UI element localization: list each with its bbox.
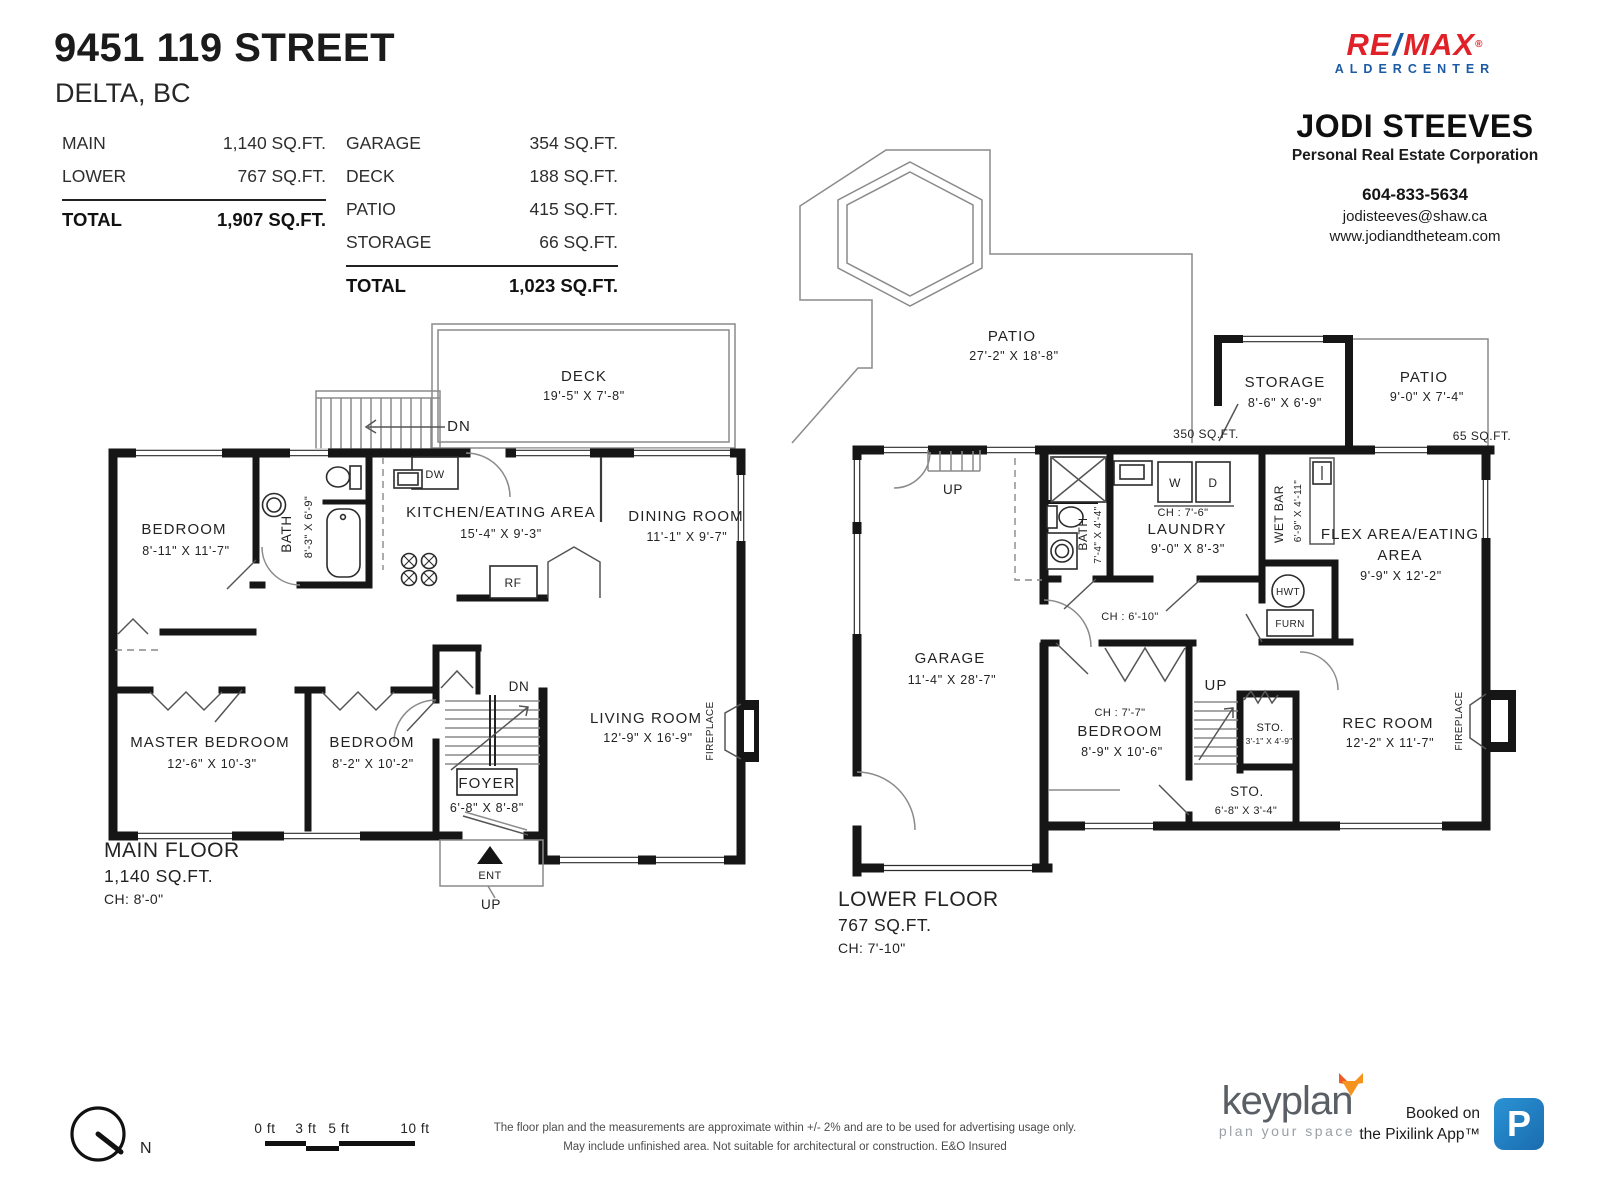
scale-bar: 0 ft 3 ft 5 ft 10 ft bbox=[254, 1121, 429, 1151]
trademark-icon: ® bbox=[1475, 39, 1483, 50]
summary-label: MAIN bbox=[62, 133, 106, 154]
summary-label: PATIO bbox=[346, 199, 396, 220]
summary-row: GARAGE 354 SQ.FT. bbox=[346, 133, 618, 154]
room-label-patio: PATIO bbox=[988, 328, 1036, 345]
scale-10: 10 ft bbox=[400, 1121, 429, 1136]
room-label-bath-main: BATH bbox=[279, 515, 294, 552]
entry-label: ENT bbox=[478, 870, 501, 882]
remax-office: ALDERCENTER bbox=[1262, 62, 1568, 76]
room-dims-garage: 11'-4" X 28'-7" bbox=[908, 673, 997, 687]
agent-website: www.jodiandtheteam.com bbox=[1262, 228, 1568, 245]
patio-outline bbox=[792, 150, 1192, 443]
room-label-bedroom2: BEDROOM bbox=[329, 734, 414, 751]
fridge-label: RF bbox=[505, 576, 522, 590]
room-label-kitchen: KITCHEN/EATING AREA bbox=[406, 504, 596, 521]
room-dims-storage: 8'-6" X 6'-9" bbox=[1248, 396, 1322, 410]
main-fireplace bbox=[725, 700, 759, 762]
entry-porch bbox=[440, 840, 543, 898]
garage-up-label: UP bbox=[943, 482, 963, 497]
agent-email: jodisteeves@shaw.ca bbox=[1262, 208, 1568, 225]
room-label-patio2: PATIO bbox=[1400, 369, 1448, 386]
room-label-laundry: LAUNDRY bbox=[1147, 521, 1226, 538]
scale-5: 5 ft bbox=[328, 1121, 349, 1136]
room-dims-foyer: 6'-8" X 8'-8" bbox=[450, 801, 524, 815]
remax-logo: RE/MAX® bbox=[1262, 30, 1568, 60]
main-floor-sqft: 1,140 SQ.FT. bbox=[104, 866, 213, 886]
main-floor-plan bbox=[113, 324, 759, 898]
page-subtitle: DELTA, BC bbox=[55, 78, 191, 109]
furnace-label: FURN bbox=[1275, 619, 1304, 630]
room-label-sto2: STO. bbox=[1230, 784, 1264, 799]
north-label: N bbox=[140, 1140, 152, 1157]
scale-3: 3 ft bbox=[295, 1121, 316, 1136]
summary-row: LOWER 767 SQ.FT. bbox=[62, 166, 326, 187]
room-dims-laundry: 9'-0" X 8'-3" bbox=[1151, 542, 1225, 556]
room-label-master: MASTER BEDROOM bbox=[130, 734, 290, 751]
pixilink-line2: the Pixilink App™ bbox=[1330, 1124, 1480, 1145]
summary-label: GARAGE bbox=[346, 133, 421, 154]
compass: N bbox=[72, 1108, 152, 1160]
room-dims-bath-main: 8'-3" X 6'-9" bbox=[303, 496, 315, 558]
summary-divider bbox=[62, 199, 326, 201]
room-dims-master: 12'-6" X 10'-3" bbox=[167, 757, 256, 771]
room-label-deck: DECK bbox=[561, 368, 607, 385]
pixilink-logo-icon: P bbox=[1494, 1098, 1544, 1150]
laundry-ch: CH : 7'-6" bbox=[1158, 507, 1209, 519]
fireplace-label-main: FIREPLACE bbox=[705, 701, 716, 760]
summary-value: 415 SQ.FT. bbox=[529, 199, 618, 220]
summary-total-value: 1,023 SQ.FT. bbox=[509, 275, 618, 297]
room-dims-wetbar: 6'-9" X 4'-11" bbox=[1293, 480, 1304, 543]
room-label-wetbar: WET BAR bbox=[1272, 485, 1286, 543]
deck-outline bbox=[432, 324, 735, 448]
foyer-stairs bbox=[445, 695, 540, 770]
area-summary-left: MAIN 1,140 SQ.FT. LOWER 767 SQ.FT. TOTAL… bbox=[62, 133, 326, 231]
area-summary-right: GARAGE 354 SQ.FT. DECK 188 SQ.FT. PATIO … bbox=[346, 133, 618, 297]
foyer-dn-label: DN bbox=[509, 679, 530, 694]
summary-total-row: TOTAL 1,907 SQ.FT. bbox=[62, 209, 326, 231]
room-label-flex2: AREA bbox=[1377, 547, 1422, 564]
stairs-up-label: UP bbox=[1204, 677, 1227, 694]
summary-value: 188 SQ.FT. bbox=[529, 166, 618, 187]
summary-value: 354 SQ.FT. bbox=[529, 133, 618, 154]
room-dims-living: 12'-9" X 16'-9" bbox=[603, 731, 692, 745]
summary-row: PATIO 415 SQ.FT. bbox=[346, 199, 618, 220]
stairs-dn-label: DN bbox=[447, 418, 471, 435]
disclaimer-line1: The floor plan and the measurements are … bbox=[430, 1119, 1140, 1138]
washer-label: W bbox=[1169, 476, 1181, 490]
summary-value: 66 SQ.FT. bbox=[539, 232, 618, 253]
room-dims-dining: 11'-1" X 9'-7" bbox=[647, 530, 728, 544]
remax-slash-icon: / bbox=[1392, 27, 1404, 62]
room-label-bedroom-lower: BEDROOM bbox=[1077, 723, 1162, 740]
summary-row: DECK 188 SQ.FT. bbox=[346, 166, 618, 187]
room-dims-sto1: 3'-1" X 4'-9" bbox=[1246, 736, 1293, 746]
room-dims-bedroom1: 8'-11" X 11'-7" bbox=[142, 544, 230, 558]
disclaimer: The floor plan and the measurements are … bbox=[430, 1119, 1140, 1157]
room-dims-patio: 27'-2" X 18'-8" bbox=[969, 349, 1058, 363]
main-floor-title: MAIN FLOOR bbox=[104, 839, 240, 862]
room-dims-bedroom2: 8'-2" X 10'-2" bbox=[332, 757, 414, 771]
agent-card: RE/MAX® ALDERCENTER JODI STEEVES Persona… bbox=[1262, 30, 1568, 245]
room-dims-rec: 12'-2" X 11'-7" bbox=[1346, 736, 1435, 750]
remax-re: RE bbox=[1347, 27, 1392, 62]
room-label-rec: REC ROOM bbox=[1342, 715, 1433, 732]
summary-row: MAIN 1,140 SQ.FT. bbox=[62, 133, 326, 154]
hwt-label: HWT bbox=[1276, 587, 1300, 598]
summary-label: LOWER bbox=[62, 166, 126, 187]
deck-stairs bbox=[316, 391, 445, 449]
room-label-storage: STORAGE bbox=[1245, 374, 1326, 391]
summary-total-row: TOTAL 1,023 SQ.FT. bbox=[346, 275, 618, 297]
room-dims-bath-lower: 7'-4" X 4'-4" bbox=[1093, 506, 1104, 563]
summary-total-value: 1,907 SQ.FT. bbox=[217, 209, 326, 231]
pixilink-line1: Booked on bbox=[1330, 1103, 1480, 1124]
summary-total-label: TOTAL bbox=[62, 209, 122, 231]
summary-value: 1,140 SQ.FT. bbox=[223, 133, 326, 154]
fireplace-label-lower: FIREPLACE bbox=[1454, 691, 1465, 750]
disclaimer-line2: May include unfinished area. Not suitabl… bbox=[430, 1138, 1140, 1157]
summary-total-label: TOTAL bbox=[346, 275, 406, 297]
patio-sqft: 350 SQ.FT. bbox=[1173, 427, 1239, 441]
summary-label: DECK bbox=[346, 166, 395, 187]
bedroom-lower-ch: CH : 7'-7" bbox=[1095, 707, 1146, 719]
room-dims-bedroom-lower: 8'-9" X 10'-6" bbox=[1081, 745, 1163, 759]
fox-icon bbox=[1336, 1072, 1366, 1098]
agent-phone: 604-833-5634 bbox=[1262, 185, 1568, 205]
room-dims-patio2: 9'-0" X 7'-4" bbox=[1390, 390, 1464, 404]
room-dims-flex: 9'-9" X 12'-2" bbox=[1360, 569, 1442, 583]
lower-floor-title: LOWER FLOOR bbox=[838, 888, 999, 911]
porch-up-label: UP bbox=[481, 897, 501, 912]
room-label-dining: DINING ROOM bbox=[628, 508, 743, 525]
main-floor-ch: CH: 8'-0" bbox=[104, 891, 163, 907]
lower-closet-doors bbox=[1105, 648, 1185, 681]
pixilink-badge: Booked on the Pixilink App™ P bbox=[1330, 1098, 1544, 1150]
lower-windows bbox=[853, 335, 1491, 873]
summary-divider bbox=[346, 265, 618, 267]
agent-designation: Personal Real Estate Corporation bbox=[1262, 147, 1568, 165]
garage-details bbox=[928, 450, 1042, 580]
summary-value: 767 SQ.FT. bbox=[237, 166, 326, 187]
lower-floor-ch: CH: 7'-10" bbox=[838, 940, 906, 956]
room-dims-deck: 19'-5" X 7'-8" bbox=[543, 389, 625, 403]
room-label-bedroom1: BEDROOM bbox=[141, 521, 226, 538]
room-label-living: LIVING ROOM bbox=[590, 710, 702, 727]
agent-name: JODI STEEVES bbox=[1262, 108, 1568, 145]
room-label-flex1: FLEX AREA/EATING bbox=[1321, 526, 1479, 543]
summary-row: STORAGE 66 SQ.FT. bbox=[346, 232, 618, 253]
remax-max: MAX bbox=[1403, 27, 1475, 62]
room-label-foyer: FOYER bbox=[458, 775, 515, 792]
hall-ch: CH : 6'-10" bbox=[1101, 611, 1158, 623]
patio2-sqft: 65 SQ.FT. bbox=[1453, 429, 1512, 443]
page-title: 9451 119 STREET bbox=[54, 26, 395, 71]
scale-0: 0 ft bbox=[254, 1121, 275, 1136]
lower-fireplace bbox=[1470, 690, 1516, 752]
room-label-sto1: STO. bbox=[1256, 722, 1283, 734]
room-label-bath-lower: BATH bbox=[1076, 517, 1090, 550]
room-dims-kitchen: 15'-4" X 9'-3" bbox=[460, 527, 542, 541]
lower-floor-plan bbox=[792, 150, 1516, 873]
lower-floor-sqft: 767 SQ.FT. bbox=[838, 915, 932, 935]
dishwasher-label: DW bbox=[425, 469, 444, 481]
dryer-label: D bbox=[1208, 476, 1217, 490]
room-label-garage: GARAGE bbox=[915, 650, 986, 667]
summary-label: STORAGE bbox=[346, 232, 431, 253]
room-dims-sto2: 6'-8" X 3'-4" bbox=[1215, 805, 1277, 817]
